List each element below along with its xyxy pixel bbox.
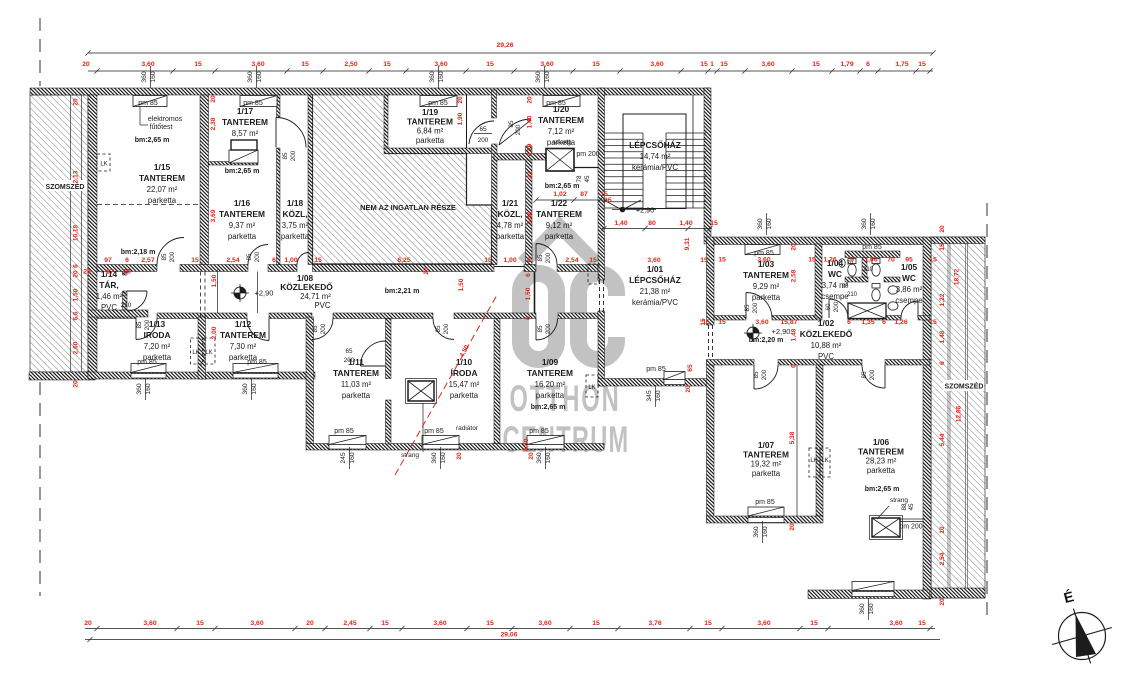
svg-text:TANTEREM: TANTEREM [858, 446, 904, 456]
svg-text:160: 160 [870, 218, 877, 230]
svg-text:pm 85: pm 85 [138, 100, 158, 107]
svg-text:20: 20 [789, 523, 796, 531]
svg-text:15: 15 [301, 61, 309, 68]
svg-text:360: 360 [861, 218, 868, 230]
svg-text:160: 160 [438, 71, 445, 83]
svg-text:15: 15 [700, 257, 708, 264]
svg-text:15: 15 [700, 318, 707, 326]
svg-text:pm 85: pm 85 [137, 359, 157, 366]
svg-text:85: 85 [161, 253, 168, 261]
svg-text:15: 15 [929, 257, 937, 264]
svg-text:6: 6 [791, 364, 798, 368]
svg-text:+2,90: +2,90 [255, 289, 274, 298]
svg-text:3,60: 3,60 [538, 620, 551, 627]
svg-text:bm:2,21 m: bm:2,21 m [385, 288, 420, 295]
svg-text:radiátor: radiátor [456, 425, 479, 432]
svg-text:15: 15 [589, 257, 597, 264]
svg-text:1/17: 1/17 [237, 106, 254, 116]
svg-text:pm 85: pm 85 [247, 359, 267, 366]
svg-text:TÁR,: TÁR, [99, 279, 119, 290]
svg-text:1,46 m²: 1,46 m² [96, 292, 123, 301]
svg-text:1,50: 1,50 [525, 287, 532, 300]
svg-text:pm 200: pm 200 [899, 524, 922, 531]
svg-text:15: 15 [704, 620, 712, 627]
svg-text:20: 20 [527, 96, 534, 104]
svg-text:LK: LK [588, 385, 595, 391]
svg-text:1/02: 1/02 [818, 318, 835, 328]
svg-text:6: 6 [272, 257, 276, 264]
svg-text:10,18: 10,18 [73, 224, 80, 241]
svg-text:3,60: 3,60 [650, 61, 663, 68]
svg-text:1/18: 1/18 [287, 198, 304, 208]
svg-text:1/01: 1/01 [647, 264, 664, 274]
svg-text:3,60: 3,60 [143, 620, 156, 627]
svg-text:1/13: 1/13 [149, 319, 166, 329]
svg-text:1,00: 1,00 [503, 257, 516, 264]
svg-text:85: 85 [753, 371, 760, 379]
svg-text:LK: LK [205, 350, 212, 356]
svg-text:3,60: 3,60 [540, 61, 553, 68]
svg-text:1,50: 1,50 [211, 274, 218, 287]
svg-text:1,26: 1,26 [823, 257, 836, 264]
svg-text:6: 6 [939, 361, 946, 365]
svg-text:3,60: 3,60 [755, 319, 768, 326]
svg-text:pm 85: pm 85 [529, 428, 549, 435]
svg-text:15: 15 [600, 191, 608, 198]
svg-text:pm 85: pm 85 [428, 100, 448, 107]
svg-text:15: 15 [592, 620, 600, 627]
svg-text:200: 200 [545, 252, 552, 263]
svg-text:parketta: parketta [496, 232, 525, 241]
svg-text:210: 210 [847, 292, 858, 298]
svg-text:160: 160 [145, 383, 152, 395]
svg-text:1,75: 1,75 [895, 61, 908, 68]
svg-text:bm:2,65 m: bm:2,65 m [531, 404, 566, 411]
svg-text:6,25: 6,25 [397, 257, 410, 264]
svg-text:1/12: 1/12 [235, 319, 252, 329]
svg-text:+2,90: +2,90 [772, 327, 791, 336]
svg-text:1,02: 1,02 [553, 191, 566, 198]
svg-text:KÖZL,: KÖZL, [282, 209, 307, 219]
svg-text:6: 6 [882, 319, 886, 326]
svg-text:parketta: parketta [228, 232, 257, 241]
svg-text:32: 32 [527, 171, 534, 179]
svg-text:TANTEREM: TANTEREM [527, 368, 573, 378]
svg-text:3,76: 3,76 [648, 620, 661, 627]
svg-text:1,06: 1,06 [864, 257, 877, 264]
svg-text:1,40: 1,40 [614, 220, 627, 227]
svg-text:29,06: 29,06 [500, 632, 517, 639]
svg-text:NEM AZ INGATLAN RÉSZE: NEM AZ INGATLAN RÉSZE [360, 203, 456, 212]
svg-text:20: 20 [73, 270, 80, 278]
svg-text:60: 60 [825, 303, 832, 311]
svg-text:360: 360 [536, 452, 543, 464]
svg-text:1,00: 1,00 [284, 257, 297, 264]
svg-text:csempe: csempe [821, 292, 848, 301]
svg-text:70: 70 [842, 284, 849, 290]
svg-text:7,20 m²: 7,20 m² [144, 342, 171, 351]
svg-text:160: 160 [762, 526, 769, 538]
svg-text:87: 87 [580, 191, 588, 198]
svg-text:245: 245 [340, 452, 347, 464]
svg-text:bm:2,65 m: bm:2,65 m [225, 168, 260, 175]
svg-text:3,60: 3,60 [141, 61, 154, 68]
svg-text:97: 97 [104, 257, 112, 264]
svg-text:85: 85 [744, 304, 751, 312]
svg-text:3,75 m²: 3,75 m² [282, 221, 309, 230]
svg-text:2,45: 2,45 [343, 620, 356, 627]
svg-text:kerámia/PVC: kerámia/PVC [632, 298, 678, 307]
svg-text:28,23 m²: 28,23 m² [866, 457, 897, 466]
svg-text:65: 65 [687, 364, 694, 372]
svg-text:pm 85: pm 85 [646, 366, 666, 373]
svg-text:20: 20 [791, 243, 798, 251]
svg-text:1/22: 1/22 [551, 198, 568, 208]
svg-text:360: 360 [859, 603, 866, 615]
svg-text:CENTRUM: CENTRUM [503, 418, 630, 460]
svg-text:95: 95 [905, 257, 913, 264]
svg-text:parketta: parketta [342, 391, 371, 400]
svg-text:15: 15 [486, 620, 494, 627]
svg-text:bm:2,65 m: bm:2,65 m [545, 183, 580, 190]
svg-text:10,88 m²: 10,88 m² [811, 341, 842, 350]
svg-text:15: 15 [700, 61, 708, 68]
svg-text:22,07 m²: 22,07 m² [147, 185, 178, 194]
svg-text:20: 20 [83, 269, 91, 276]
svg-text:360: 360 [141, 71, 148, 83]
svg-text:1/21: 1/21 [502, 198, 519, 208]
svg-text:6: 6 [525, 316, 532, 320]
svg-text:TANTEREM: TANTEREM [333, 368, 379, 378]
svg-text:2,54: 2,54 [939, 552, 946, 565]
svg-text:360: 360 [753, 526, 760, 538]
svg-text:15: 15 [720, 61, 728, 68]
svg-text:3,60: 3,60 [761, 61, 774, 68]
svg-text:345: 345 [646, 390, 653, 402]
svg-text:20: 20 [210, 95, 217, 103]
svg-text:65: 65 [479, 126, 487, 133]
svg-text:KÖZL,: KÖZL, [497, 209, 522, 219]
svg-text:3,69: 3,69 [210, 209, 217, 222]
svg-text:6,29: 6,29 [527, 143, 534, 156]
svg-text:bm:2,18 m: bm:2,18 m [121, 249, 156, 256]
svg-text:7,12 m²: 7,12 m² [548, 127, 575, 136]
svg-text:9,31: 9,31 [684, 237, 691, 250]
svg-text:7,30 m²: 7,30 m² [230, 342, 257, 351]
svg-text:ÍRODA: ÍRODA [451, 367, 478, 378]
svg-text:15: 15 [592, 61, 600, 68]
svg-text:2,58: 2,58 [791, 269, 798, 282]
svg-text:200: 200 [254, 251, 261, 262]
svg-text:15: 15 [381, 620, 389, 627]
svg-text:LÉPCSŐHÁZ: LÉPCSŐHÁZ [629, 274, 681, 285]
svg-text:1,79: 1,79 [840, 61, 853, 68]
svg-text:360: 360 [242, 383, 249, 395]
svg-text:6: 6 [525, 273, 532, 277]
svg-text:TANTEREM: TANTEREM [743, 449, 789, 459]
svg-text:200: 200 [478, 137, 489, 144]
svg-text:9,29 m²: 9,29 m² [753, 282, 780, 291]
svg-text:20: 20 [457, 96, 464, 104]
svg-text:parketta: parketta [867, 466, 896, 475]
svg-text:1,90: 1,90 [457, 112, 464, 125]
svg-text:kerámia/PVC: kerámia/PVC [632, 163, 678, 172]
svg-text:160: 160 [655, 390, 662, 402]
svg-text:85: 85 [435, 325, 442, 333]
svg-text:3,60: 3,60 [647, 257, 660, 264]
svg-text:6: 6 [850, 257, 854, 264]
svg-text:20: 20 [123, 269, 131, 276]
svg-text:20: 20 [939, 225, 946, 233]
svg-text:1,50: 1,50 [458, 278, 465, 291]
svg-text:3,60: 3,60 [757, 620, 770, 627]
svg-text:3,60: 3,60 [889, 620, 902, 627]
svg-text:15: 15 [718, 319, 726, 326]
svg-text:15: 15 [383, 61, 391, 68]
svg-text:200: 200 [344, 357, 355, 364]
svg-text:WC: WC [828, 269, 842, 279]
svg-text:11,03 m²: 11,03 m² [341, 380, 372, 389]
svg-text:15: 15 [194, 61, 202, 68]
svg-text:15,87: 15,87 [780, 319, 797, 326]
svg-text:210: 210 [121, 302, 132, 309]
svg-text:1,40: 1,40 [527, 115, 534, 128]
svg-text:24,71 m²: 24,71 m² [300, 292, 331, 301]
svg-text:200: 200 [320, 323, 327, 334]
svg-text:200: 200 [833, 301, 840, 312]
svg-text:6,84 m²: 6,84 m² [417, 127, 444, 136]
svg-text:pm 85: pm 85 [755, 499, 775, 506]
svg-text:85: 85 [537, 325, 544, 333]
svg-text:2,57: 2,57 [141, 257, 154, 264]
svg-text:160: 160 [349, 452, 356, 464]
svg-text:1/16: 1/16 [234, 198, 251, 208]
svg-text:pm 85: pm 85 [424, 428, 444, 435]
svg-text:bm:2,65 m: bm:2,65 m [135, 137, 170, 144]
svg-text:2,54: 2,54 [565, 257, 578, 264]
svg-text:1,48: 1,48 [939, 330, 946, 343]
svg-text:TANTEREM: TANTEREM [220, 330, 266, 340]
svg-text:LK: LK [100, 162, 107, 168]
svg-text:75: 75 [121, 292, 127, 298]
svg-text:78: 78 [576, 175, 583, 183]
svg-text:TANTEREM: TANTEREM [538, 115, 584, 125]
svg-text:3,60: 3,60 [434, 61, 447, 68]
svg-text:5,38: 5,38 [789, 431, 796, 444]
svg-text:parketta: parketta [752, 469, 781, 478]
svg-text:85: 85 [246, 253, 253, 261]
svg-text:1/15: 1/15 [154, 162, 171, 172]
svg-text:LK: LK [821, 458, 828, 464]
svg-text:3,60: 3,60 [433, 620, 446, 627]
svg-text:160: 160 [545, 452, 552, 464]
svg-text:15: 15 [812, 61, 820, 68]
svg-text:160: 160 [256, 71, 263, 83]
svg-text:3,60: 3,60 [250, 620, 263, 627]
svg-text:IRODA: IRODA [144, 330, 171, 340]
svg-text:KÖZLEKEDŐ: KÖZLEKEDŐ [280, 281, 333, 292]
svg-text:2,54: 2,54 [226, 257, 239, 264]
svg-text:20: 20 [685, 385, 692, 393]
svg-text:85: 85 [508, 120, 515, 128]
svg-text:20: 20 [456, 452, 463, 460]
svg-text:1,40: 1,40 [679, 220, 692, 227]
svg-text:4,78 m²: 4,78 m² [497, 221, 524, 230]
svg-text:5,44: 5,44 [939, 433, 946, 446]
svg-text:6: 6 [847, 319, 851, 326]
svg-text:85: 85 [136, 321, 143, 329]
svg-text:85: 85 [282, 152, 289, 160]
svg-text:15: 15 [314, 257, 322, 264]
svg-text:160: 160 [868, 603, 875, 615]
svg-text:1/09: 1/09 [542, 357, 559, 367]
svg-text:PVC: PVC [314, 301, 330, 310]
svg-text:15: 15 [718, 257, 726, 264]
svg-text:45: 45 [908, 503, 915, 511]
svg-text:20: 20 [73, 98, 80, 106]
svg-text:1,35: 1,35 [861, 319, 874, 326]
svg-text:160: 160 [440, 452, 447, 464]
svg-text:20: 20 [82, 61, 90, 68]
svg-text:1/05: 1/05 [901, 262, 918, 272]
svg-text:29,26: 29,26 [496, 42, 513, 49]
svg-text:2,13: 2,13 [73, 170, 80, 183]
svg-text:KÖZLEKEDŐ: KÖZLEKEDŐ [800, 328, 853, 339]
svg-text:LÉPCSŐHÁZ: LÉPCSŐHÁZ [629, 139, 681, 150]
svg-text:parketta: parketta [536, 391, 565, 400]
svg-text:8,57 m²: 8,57 m² [232, 129, 259, 138]
svg-text:6: 6 [125, 257, 129, 264]
svg-text:360: 360 [429, 71, 436, 83]
svg-text:parketta: parketta [416, 136, 445, 145]
svg-text:12,86: 12,86 [956, 405, 963, 422]
svg-text:PVC: PVC [818, 352, 834, 361]
svg-text:9,12 m²: 9,12 m² [546, 221, 573, 230]
svg-text:pm 85: pm 85 [243, 100, 263, 107]
svg-text:2,50: 2,50 [344, 61, 357, 68]
svg-text:200: 200 [443, 323, 450, 334]
svg-text:LK: LK [810, 458, 817, 464]
svg-text:65: 65 [345, 348, 353, 355]
svg-text:10: 10 [939, 526, 946, 534]
svg-text:200: 200 [290, 150, 297, 161]
svg-text:360: 360 [247, 71, 254, 83]
svg-text:6,6: 6,6 [73, 311, 80, 320]
svg-text:15: 15 [929, 319, 937, 326]
svg-text:85: 85 [861, 371, 868, 379]
svg-text:TANTEREM: TANTEREM [536, 209, 582, 219]
svg-text:360: 360 [535, 71, 542, 83]
svg-text:14,74 m²: 14,74 m² [640, 152, 671, 161]
svg-text:20: 20 [423, 267, 430, 275]
svg-text:pm 200: pm 200 [576, 151, 599, 158]
svg-text:15: 15 [939, 243, 946, 251]
svg-text:1,26: 1,26 [894, 319, 907, 326]
svg-text:SZOMSZÉD: SZOMSZÉD [945, 382, 984, 391]
svg-text:3,60: 3,60 [757, 257, 770, 264]
svg-text:WC: WC [902, 273, 916, 283]
svg-text:pm 85: pm 85 [862, 244, 882, 251]
svg-text:200: 200 [869, 369, 876, 380]
svg-text:15: 15 [918, 620, 926, 627]
svg-text:TANTEREM: TANTEREM [743, 270, 789, 280]
svg-text:200: 200 [752, 302, 759, 313]
svg-text:LK: LK [192, 350, 199, 356]
svg-text:strang: strang [401, 452, 419, 459]
svg-text:88: 88 [901, 503, 908, 511]
svg-text:200: 200 [515, 124, 522, 135]
svg-text:9,37 m²: 9,37 m² [229, 221, 256, 230]
svg-text:160: 160 [544, 71, 551, 83]
svg-text:parketta: parketta [148, 196, 177, 205]
svg-text:TANTEREM: TANTEREM [222, 117, 268, 127]
svg-text:15: 15 [918, 61, 926, 68]
svg-text:1,48: 1,48 [791, 328, 798, 341]
svg-text:2,00: 2,00 [211, 326, 218, 339]
svg-text:csempe: csempe [895, 296, 922, 305]
svg-text:15: 15 [196, 620, 204, 627]
svg-text:200: 200 [545, 323, 552, 334]
svg-text:15,47 m²: 15,47 m² [449, 380, 480, 389]
svg-text:87: 87 [106, 269, 114, 276]
svg-text:20: 20 [73, 380, 80, 388]
svg-text:70: 70 [887, 257, 895, 264]
svg-text:3,60: 3,60 [251, 61, 264, 68]
svg-text:fűtőtest: fűtőtest [150, 124, 173, 131]
svg-text:15: 15 [486, 61, 494, 68]
svg-text:TANTEREM: TANTEREM [219, 209, 265, 219]
svg-text:160: 160 [766, 218, 773, 230]
svg-text:80: 80 [648, 220, 656, 227]
svg-text:3,46: 3,46 [527, 211, 534, 224]
svg-text:1: 1 [710, 61, 714, 68]
svg-text:parketta: parketta [545, 232, 574, 241]
svg-text:160: 160 [251, 383, 258, 395]
svg-text:160: 160 [150, 71, 157, 83]
svg-text:85: 85 [312, 325, 319, 333]
svg-text:20: 20 [939, 598, 946, 606]
svg-text:TANTEREM: TANTEREM [139, 173, 185, 183]
svg-text:TANTEREM: TANTEREM [407, 116, 453, 126]
svg-text:1/20: 1/20 [553, 104, 570, 114]
svg-text:pm 85: pm 85 [334, 428, 354, 435]
svg-text:bm:2,65 m: bm:2,65 m [865, 486, 900, 493]
svg-text:15: 15 [810, 620, 818, 627]
svg-text:15: 15 [604, 197, 612, 204]
svg-text:6: 6 [527, 257, 531, 264]
svg-text:15: 15 [191, 257, 199, 264]
svg-text:elektromos: elektromos [148, 116, 183, 123]
svg-text:200: 200 [144, 319, 151, 330]
svg-text:45: 45 [584, 175, 591, 183]
svg-text:1,50: 1,50 [73, 288, 80, 301]
svg-text:85: 85 [537, 254, 544, 262]
svg-text:18,72: 18,72 [954, 268, 961, 285]
svg-text:20: 20 [306, 620, 314, 627]
svg-text:360: 360 [431, 452, 438, 464]
svg-text:15: 15 [484, 257, 492, 264]
svg-text:20: 20 [84, 620, 92, 627]
svg-text:6: 6 [866, 61, 870, 68]
svg-text:210: 210 [863, 267, 874, 273]
svg-text:1,22: 1,22 [939, 293, 946, 306]
svg-text:360: 360 [757, 218, 764, 230]
svg-text:15: 15 [808, 257, 816, 264]
svg-text:200: 200 [169, 251, 176, 262]
svg-text:15: 15 [710, 220, 718, 227]
svg-text:2,38: 2,38 [210, 117, 217, 130]
svg-text:+2,90: +2,90 [636, 206, 654, 215]
